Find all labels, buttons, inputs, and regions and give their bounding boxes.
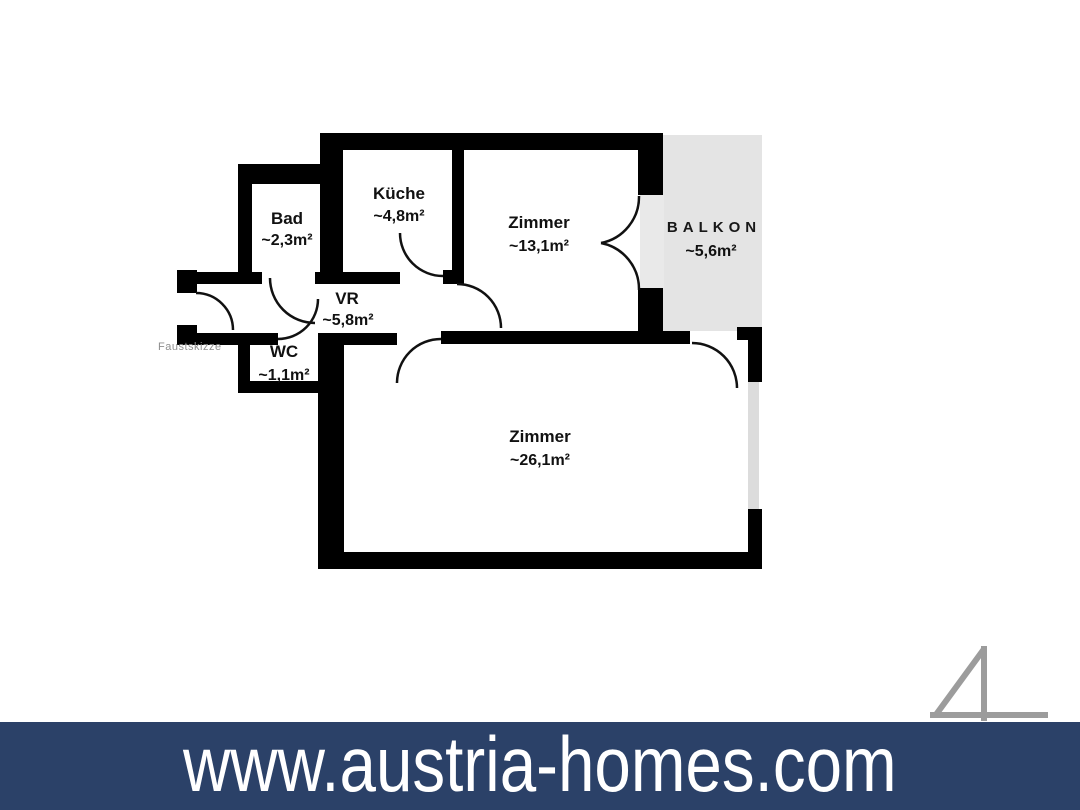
bad-room-area: ~2,3m² (261, 232, 312, 249)
balkon-room-area: ~5,6m² (685, 243, 736, 260)
entrance-door-arc (196, 293, 233, 330)
zimmer26-vr-door-arc (397, 339, 441, 383)
zimmer26-room-label: Zimmer (509, 427, 571, 446)
logo-stroke (930, 646, 1048, 721)
wall-kueche-door-stub (443, 270, 452, 284)
zimmer13-room-area: ~13,1m² (509, 238, 569, 255)
wall-bad-top (238, 164, 340, 184)
wall-bad-kueche-divider (320, 133, 343, 284)
wall-right-pier-upper (748, 327, 762, 382)
wall-entry-pier-top (177, 270, 197, 293)
balcony-door-upper-leaf-arc (601, 196, 639, 243)
balcony-door-threshold (640, 195, 664, 288)
wall-kueche-zimmer-divider (452, 133, 464, 284)
balcony-door-lower-leaf-arc (601, 243, 639, 290)
bad-room-label: Bad (271, 209, 303, 228)
wall-balcony-pier-top (638, 133, 663, 195)
kueche-room-label: Küche (373, 184, 425, 203)
floorplan-svg: Bad ~2,3m² Küche ~4,8m² Zimmer ~13,1m² B… (0, 0, 1080, 810)
bad-door-arc (270, 278, 315, 323)
wall-bad-left (238, 164, 252, 284)
zimmer13-room-label: Zimmer (508, 213, 570, 232)
zimmer13-door-arc (457, 284, 501, 328)
balkon-room-label: BALKON (667, 219, 761, 236)
wall-top-outer (320, 133, 663, 150)
zimmer26-right-door-arc (692, 343, 737, 388)
wall-bottom-outer (318, 552, 762, 569)
window-opening (748, 380, 759, 511)
zimmer26-room-area: ~26,1m² (510, 452, 570, 469)
kueche-door-arc (400, 233, 443, 276)
vr-room-label: VR (335, 289, 359, 308)
footer-banner: www.austria-homes.com (0, 722, 1080, 810)
floorplan-page: Bad ~2,3m² Küche ~4,8m² Zimmer ~13,1m² B… (0, 0, 1080, 810)
wall-kueche-bottom (315, 272, 400, 284)
wc-room-label: WC (270, 342, 298, 361)
wall-vr-bottom (344, 333, 397, 345)
website-url-text: www.austria-homes.com (183, 725, 897, 807)
wc-room-area: ~1,1m² (258, 367, 309, 384)
agency-logo-4-icon (930, 646, 1048, 721)
wall-livingroom-left (318, 333, 344, 569)
wall-balcony-pier-bottom (638, 288, 663, 333)
vr-room-area: ~5,8m² (322, 312, 373, 329)
sketch-type-label: Faustskizze (158, 341, 222, 353)
kueche-room-area: ~4,8m² (373, 208, 424, 225)
